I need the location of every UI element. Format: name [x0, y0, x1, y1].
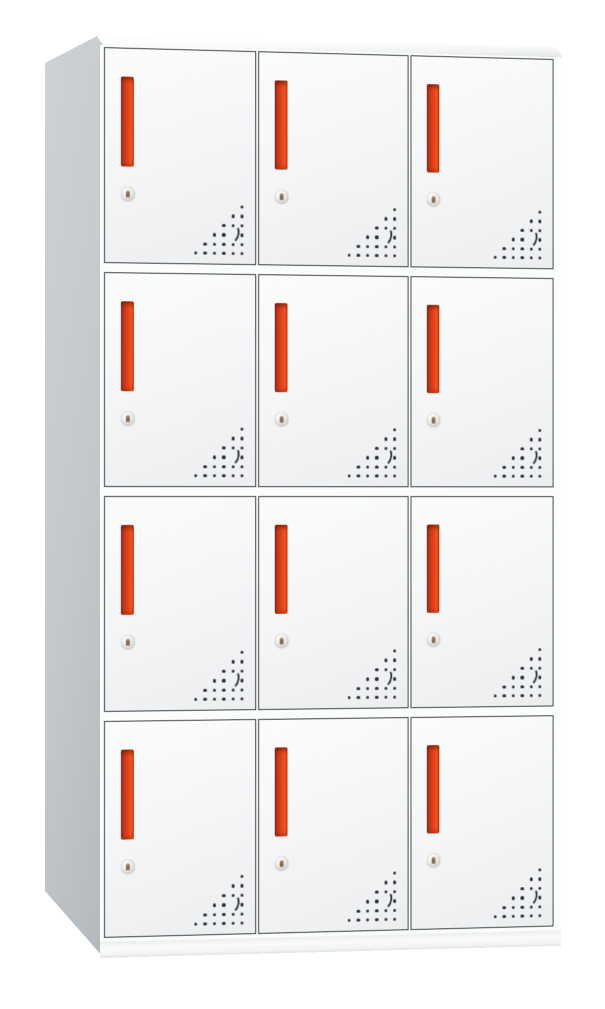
- keyhole-lock: [121, 411, 135, 425]
- vent-hole: [393, 899, 396, 902]
- vent-hole: [222, 242, 225, 245]
- keyhole-icon: [432, 856, 435, 863]
- vent-hole: [521, 456, 524, 459]
- vent-hole: [366, 474, 369, 477]
- vent-hole: [521, 915, 524, 918]
- vent-hole: [393, 881, 396, 884]
- keyhole-icon: [126, 190, 129, 197]
- keyhole-lock: [275, 856, 289, 870]
- locker-product-image: [0, 0, 605, 1009]
- keyhole-lock: [275, 412, 289, 426]
- keyhole-lock: [275, 634, 289, 648]
- vent-hole: [393, 668, 396, 671]
- vent-hole: [538, 896, 541, 899]
- vent-hole: [503, 256, 506, 259]
- keyhole-lock: [121, 186, 135, 200]
- vent-hole: [393, 908, 396, 911]
- vent-hole: [231, 252, 234, 255]
- vent-hole: [213, 233, 216, 236]
- vent-holes-icon: [491, 427, 544, 480]
- vent-crescent-icon: [225, 669, 241, 690]
- vent-hole: [213, 688, 216, 691]
- vent-hole: [393, 428, 396, 431]
- vent-hole: [366, 900, 369, 903]
- vent-hole: [393, 659, 396, 662]
- vent-hole: [529, 657, 532, 660]
- vent-hole: [393, 456, 396, 459]
- vent-hole: [204, 252, 207, 255]
- vent-hole: [231, 697, 234, 700]
- vent-hole: [521, 905, 524, 908]
- vent-hole: [240, 446, 243, 449]
- vent-hole: [366, 677, 369, 680]
- vent-hole: [538, 685, 541, 688]
- vent-hole: [213, 913, 216, 916]
- vent-hole: [393, 918, 396, 921]
- vent-hole: [240, 437, 243, 440]
- vent-hole: [357, 909, 360, 912]
- door-handle: [427, 745, 439, 833]
- keyhole-icon: [126, 863, 129, 870]
- vent-hole: [222, 903, 225, 906]
- vent-hole: [512, 238, 515, 241]
- vent-crescent-icon: [378, 446, 394, 467]
- vent-hole: [204, 688, 207, 691]
- vent-hole: [538, 887, 541, 890]
- vent-hole: [375, 687, 378, 690]
- vent-hole: [366, 465, 369, 468]
- vent-hole: [375, 254, 378, 257]
- vent-crescent-icon: [378, 667, 394, 688]
- vent-hole: [213, 455, 216, 458]
- keyhole-lock: [427, 413, 440, 427]
- vent-hole: [231, 215, 234, 218]
- vent-hole: [538, 648, 541, 651]
- locker-door-r3c1: [104, 496, 256, 712]
- vent-hole: [240, 456, 243, 459]
- keyhole-lock: [275, 189, 289, 203]
- vent-holes-icon: [191, 649, 246, 703]
- vent-hole: [538, 429, 541, 432]
- vent-hole: [521, 896, 524, 899]
- vent-hole: [204, 922, 207, 925]
- door-handle: [275, 80, 288, 169]
- keyhole-lock: [121, 859, 135, 873]
- keyhole-lock: [427, 853, 440, 867]
- door-row-1: [100, 47, 561, 269]
- vent-hole: [538, 475, 541, 478]
- vent-hole: [384, 254, 387, 257]
- vent-holes-icon: [191, 873, 246, 928]
- keyhole-lock: [427, 632, 440, 646]
- vent-hole: [538, 247, 541, 250]
- door-handle: [427, 84, 439, 173]
- vent-hole: [375, 890, 378, 893]
- vent-hole: [384, 918, 387, 921]
- vent-hole: [231, 474, 234, 477]
- vent-hole: [357, 465, 360, 468]
- vent-hole: [240, 224, 243, 227]
- vent-hole: [538, 694, 541, 697]
- vent-hole: [494, 475, 497, 478]
- vent-hole: [222, 670, 225, 673]
- vent-hole: [393, 871, 396, 874]
- vent-hole: [240, 921, 243, 924]
- vent-crescent-icon: [378, 225, 394, 246]
- door-handle: [275, 747, 288, 836]
- vent-hole: [240, 660, 243, 663]
- vent-hole: [366, 254, 369, 257]
- vent-crescent-icon: [225, 445, 241, 466]
- vent-hole: [521, 676, 524, 679]
- vent-hole: [538, 905, 541, 908]
- vent-crescent-icon: [378, 889, 394, 910]
- vent-hole: [222, 465, 225, 468]
- vent-hole: [393, 217, 396, 220]
- vent-hole: [503, 247, 506, 250]
- vent-hole: [348, 919, 351, 922]
- vent-hole: [213, 465, 216, 468]
- vent-hole: [521, 887, 524, 890]
- vent-hole: [204, 913, 207, 916]
- vent-hole: [538, 676, 541, 679]
- vent-hole: [240, 651, 243, 654]
- vent-hole: [194, 923, 197, 926]
- keyhole-lock: [427, 192, 440, 206]
- vent-hole: [213, 679, 216, 682]
- vent-hole: [538, 666, 541, 669]
- vent-hole: [240, 688, 243, 691]
- vent-hole: [222, 474, 225, 477]
- vent-hole: [240, 884, 243, 887]
- vent-holes-icon: [491, 866, 544, 920]
- locker-door-r2c2: [258, 274, 408, 487]
- cabinet-front: [100, 45, 561, 958]
- vent-hole: [538, 256, 541, 259]
- keyhole-icon: [432, 196, 435, 203]
- door-handle: [427, 305, 439, 393]
- vent-hole: [521, 685, 524, 688]
- vent-hole: [231, 922, 234, 925]
- vent-hole: [384, 437, 387, 440]
- vent-hole: [538, 466, 541, 469]
- vent-crescent-icon: [523, 446, 539, 467]
- vent-hole: [521, 447, 524, 450]
- vent-hole: [204, 474, 207, 477]
- vent-hole: [366, 696, 369, 699]
- vent-hole: [538, 438, 541, 441]
- locker-door-r1c3: [411, 55, 554, 269]
- vent-hole: [366, 235, 369, 238]
- vent-hole: [375, 447, 378, 450]
- locker-door-r2c3: [411, 276, 554, 487]
- vent-hole: [231, 437, 234, 440]
- vent-hole: [213, 698, 216, 701]
- vent-hole: [393, 465, 396, 468]
- vent-holes-icon: [345, 426, 399, 479]
- vent-hole: [366, 687, 369, 690]
- vent-hole: [375, 465, 378, 468]
- vent-hole: [503, 915, 506, 918]
- vent-hole: [494, 915, 497, 918]
- locker-door-r1c1: [104, 47, 256, 265]
- vent-hole: [512, 465, 515, 468]
- vent-hole: [384, 659, 387, 662]
- locker-door-r3c3: [411, 496, 554, 708]
- vent-hole: [521, 238, 524, 241]
- vent-hole: [231, 884, 234, 887]
- keyhole-lock: [121, 635, 135, 649]
- vent-hole: [503, 694, 506, 697]
- door-handle: [275, 303, 288, 392]
- locker-door-r3c2: [258, 496, 408, 710]
- vent-hole: [240, 875, 243, 878]
- vent-hole: [375, 245, 378, 248]
- vent-hole: [231, 660, 234, 663]
- vent-hole: [393, 227, 396, 230]
- vent-hole: [222, 922, 225, 925]
- vent-hole: [393, 677, 396, 680]
- vent-holes-icon: [345, 205, 399, 259]
- vent-hole: [393, 236, 396, 239]
- vent-hole: [384, 696, 387, 699]
- vent-hole: [357, 244, 360, 247]
- vent-crescent-icon: [523, 666, 539, 687]
- vent-holes-icon: [191, 425, 246, 479]
- vent-hole: [213, 922, 216, 925]
- vent-hole: [393, 254, 396, 257]
- vent-hole: [538, 914, 541, 917]
- vent-hole: [240, 205, 243, 208]
- vent-hole: [357, 696, 360, 699]
- vent-hole: [240, 903, 243, 906]
- locker-door-r4c1: [104, 719, 256, 938]
- vent-hole: [204, 698, 207, 701]
- vent-holes-icon: [491, 208, 544, 262]
- vent-hole: [222, 679, 225, 682]
- vent-hole: [512, 676, 515, 679]
- vent-hole: [529, 220, 532, 223]
- door-row-2: [100, 272, 561, 487]
- keyhole-icon: [126, 638, 129, 645]
- vent-hole: [213, 903, 216, 906]
- vent-holes-icon: [345, 647, 399, 701]
- vent-hole: [512, 475, 515, 478]
- vent-hole: [393, 245, 396, 248]
- vent-hole: [240, 893, 243, 896]
- vent-hole: [512, 685, 515, 688]
- vent-hole: [366, 245, 369, 248]
- vent-hole: [503, 906, 506, 909]
- vent-hole: [393, 649, 396, 652]
- vent-hole: [512, 896, 515, 899]
- vent-hole: [240, 215, 243, 218]
- vent-hole: [512, 247, 515, 250]
- vent-hole: [366, 456, 369, 459]
- vent-hole: [529, 694, 532, 697]
- vent-hole: [529, 475, 532, 478]
- vent-hole: [375, 696, 378, 699]
- vent-hole: [240, 697, 243, 700]
- door-row-4: [100, 715, 561, 938]
- vent-hole: [194, 251, 197, 254]
- vent-hole: [375, 668, 378, 671]
- vent-hole: [375, 918, 378, 921]
- locker-door-r1c2: [258, 51, 408, 267]
- vent-hole: [357, 474, 360, 477]
- vent-hole: [240, 912, 243, 915]
- vent-hole: [393, 696, 396, 699]
- door-handle: [121, 750, 134, 840]
- vent-hole: [393, 474, 396, 477]
- vent-hole: [222, 894, 225, 897]
- vent-holes-icon: [345, 869, 399, 923]
- vent-hole: [538, 229, 541, 232]
- vent-hole: [512, 915, 515, 918]
- vent-hole: [366, 918, 369, 921]
- keyhole-icon: [280, 415, 283, 422]
- vent-hole: [222, 688, 225, 691]
- keyhole-icon: [432, 416, 435, 423]
- vent-hole: [213, 252, 216, 255]
- vent-hole: [240, 233, 243, 236]
- locker-door-r4c3: [411, 715, 554, 930]
- vent-hole: [357, 687, 360, 690]
- vent-hole: [393, 890, 396, 893]
- vent-hole: [375, 226, 378, 229]
- door-handle: [121, 525, 134, 615]
- vent-hole: [222, 698, 225, 701]
- vent-hole: [375, 909, 378, 912]
- vent-crescent-icon: [225, 893, 241, 914]
- vent-hole: [538, 220, 541, 223]
- vent-hole: [375, 900, 378, 903]
- vent-hole: [384, 217, 387, 220]
- vent-hole: [357, 919, 360, 922]
- vent-hole: [538, 877, 541, 880]
- vent-hole: [213, 242, 216, 245]
- vent-hole: [521, 247, 524, 250]
- vent-hole: [538, 211, 541, 214]
- vent-hole: [393, 686, 396, 689]
- door-handle: [121, 301, 134, 391]
- vent-hole: [538, 447, 541, 450]
- vent-hole: [204, 465, 207, 468]
- vent-hole: [348, 696, 351, 699]
- vent-hole: [222, 252, 225, 255]
- vent-hole: [375, 236, 378, 239]
- vent-hole: [521, 694, 524, 697]
- vent-hole: [512, 906, 515, 909]
- vent-hole: [503, 465, 506, 468]
- vent-hole: [393, 447, 396, 450]
- vent-hole: [240, 428, 243, 431]
- vent-hole: [222, 224, 225, 227]
- vent-holes-icon: [491, 646, 544, 699]
- vent-crescent-icon: [523, 228, 539, 249]
- vent-hole: [348, 474, 351, 477]
- vent-hole: [512, 456, 515, 459]
- vent-hole: [240, 669, 243, 672]
- keyhole-icon: [280, 193, 283, 200]
- vent-hole: [494, 256, 497, 259]
- vent-hole: [529, 438, 532, 441]
- vent-hole: [512, 694, 515, 697]
- vent-hole: [521, 229, 524, 232]
- vent-hole: [375, 677, 378, 680]
- keyhole-icon: [280, 637, 283, 644]
- vent-hole: [213, 474, 216, 477]
- locker-door-r4c2: [258, 717, 408, 934]
- vent-hole: [348, 254, 351, 257]
- vent-hole: [393, 438, 396, 441]
- vent-holes-icon: [191, 203, 246, 258]
- vent-hole: [375, 456, 378, 459]
- vent-hole: [240, 243, 243, 246]
- vent-hole: [384, 474, 387, 477]
- vent-hole: [503, 475, 506, 478]
- keyhole-icon: [280, 860, 283, 867]
- keyhole-icon: [126, 415, 129, 422]
- vent-crescent-icon: [225, 223, 241, 244]
- vent-hole: [538, 238, 541, 241]
- vent-hole: [222, 233, 225, 236]
- vent-hole: [393, 208, 396, 211]
- vent-hole: [222, 456, 225, 459]
- vent-hole: [204, 242, 207, 245]
- vent-hole: [521, 475, 524, 478]
- vent-hole: [538, 456, 541, 459]
- vent-hole: [194, 474, 197, 477]
- vent-hole: [240, 679, 243, 682]
- vent-hole: [538, 657, 541, 660]
- vent-hole: [240, 474, 243, 477]
- vent-hole: [494, 694, 497, 697]
- cabinet-side-panel: [45, 33, 103, 958]
- vent-hole: [521, 465, 524, 468]
- vent-hole: [503, 685, 506, 688]
- door-handle: [427, 525, 439, 613]
- vent-hole: [194, 698, 197, 701]
- keyhole-icon: [432, 636, 435, 643]
- vent-hole: [366, 909, 369, 912]
- vent-hole: [357, 254, 360, 257]
- vent-hole: [512, 256, 515, 259]
- vent-hole: [384, 881, 387, 884]
- vent-hole: [538, 868, 541, 871]
- vent-hole: [222, 446, 225, 449]
- vent-hole: [240, 252, 243, 255]
- door-handle: [121, 77, 134, 167]
- vent-hole: [375, 474, 378, 477]
- vent-hole: [222, 913, 225, 916]
- vent-hole: [521, 256, 524, 259]
- vent-hole: [529, 914, 532, 917]
- vent-crescent-icon: [523, 886, 539, 907]
- door-handle: [275, 525, 288, 614]
- vent-hole: [529, 878, 532, 881]
- locker-door-r2c1: [104, 272, 256, 487]
- door-row-3: [100, 496, 561, 712]
- vent-hole: [240, 465, 243, 468]
- vent-hole: [529, 256, 532, 259]
- vent-hole: [521, 667, 524, 670]
